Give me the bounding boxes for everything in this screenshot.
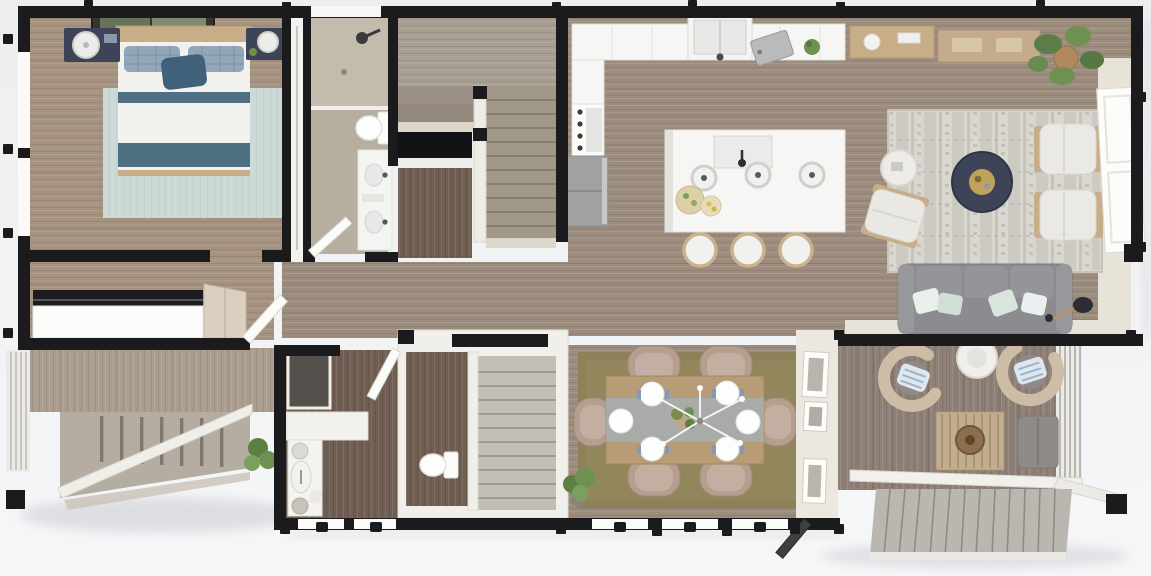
floor-plan-canvas [0, 0, 1151, 576]
dining-table [606, 376, 764, 464]
decor-dish [864, 34, 880, 50]
porch-post [6, 490, 25, 509]
window-bench-frame [33, 290, 203, 306]
bed [116, 26, 252, 176]
barstool [684, 234, 716, 266]
barstool [732, 234, 764, 266]
floor-plan-3d [0, 0, 1151, 576]
armchair [1034, 190, 1103, 240]
round-tray [292, 443, 308, 459]
wall-bedroom-south [18, 250, 210, 262]
porch-railing [6, 350, 30, 472]
powder-vanity [288, 440, 322, 516]
bedroom-window [18, 52, 30, 148]
console [938, 30, 1040, 62]
back-cushion [1010, 266, 1054, 298]
wall-right [1131, 6, 1143, 256]
stair-step [398, 86, 478, 104]
round-basket [292, 498, 308, 514]
wall-living-deck [838, 334, 1143, 346]
faucet [382, 172, 387, 177]
stair-flight-upper [486, 86, 556, 248]
console [850, 26, 934, 58]
room-closet [291, 16, 303, 262]
coffee-table [952, 152, 1012, 212]
armchair [1034, 124, 1103, 174]
island [665, 130, 845, 232]
deck-post [1106, 494, 1127, 514]
lower-stairs [468, 352, 556, 510]
nightstand-right [246, 28, 288, 60]
room-dining [563, 330, 838, 518]
stair-railing [474, 86, 486, 242]
deck-stairs [869, 489, 1072, 560]
wall-front [18, 338, 250, 350]
picture-window [33, 306, 203, 338]
mudroom-bench [286, 412, 368, 440]
shower-glass [311, 106, 388, 110]
wall-lower-left [274, 345, 286, 530]
shower-drain [341, 69, 347, 75]
range [572, 104, 604, 156]
table-lamp [258, 32, 278, 52]
deck-coffee-table [936, 412, 1004, 470]
throw-pillow [936, 292, 963, 316]
herb-plant [804, 39, 820, 55]
faucet [382, 219, 387, 224]
faucet [716, 53, 723, 60]
room-entry [33, 284, 246, 338]
nightstand-left [64, 28, 120, 62]
bathroom-window [311, 6, 381, 17]
accent-pillow [160, 53, 208, 90]
vanity [358, 150, 392, 250]
small-plant [249, 48, 257, 56]
wall-top [18, 6, 1143, 18]
kitchen-sink [688, 14, 752, 61]
picture-frames [802, 351, 829, 503]
stairwell [398, 16, 556, 258]
stair-void [398, 132, 472, 158]
mudroom-window [288, 350, 330, 408]
wc-toilet [420, 452, 458, 478]
sofa [898, 264, 1072, 334]
headboard [116, 26, 252, 44]
barstool [780, 234, 812, 266]
bedroom-window [18, 158, 30, 236]
